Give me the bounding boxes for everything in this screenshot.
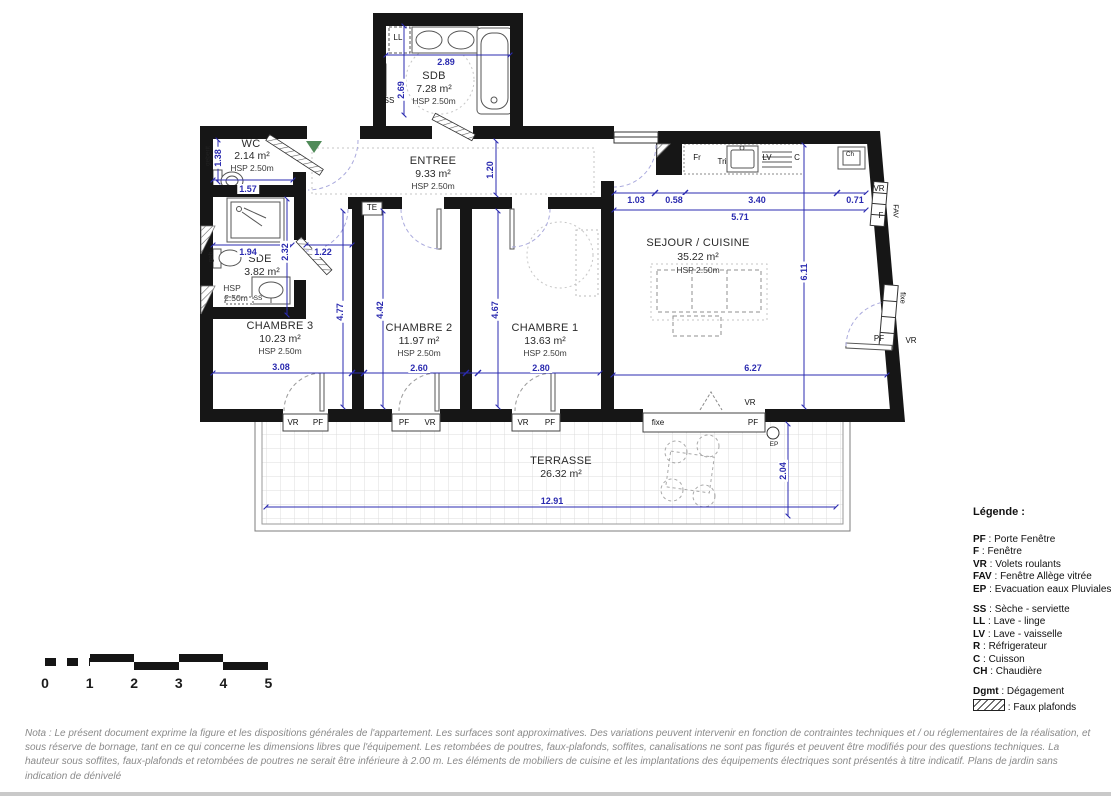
legend-item-ll: LL : Lave - linge <box>973 616 1111 628</box>
dim-terrace-height: 2.04 <box>778 460 788 482</box>
dim-ch3-height: 4.77 <box>335 301 345 323</box>
room-hsp-sde-1: HSP <box>223 283 240 293</box>
entrance-arrow <box>306 141 322 153</box>
floorplan-page: SDB 7.28 m² HSP 2.50m WC 2.14 m² HSP 2.5… <box>0 0 1111 800</box>
scale-segment-0-1 <box>45 658 90 666</box>
room-area-ch1: 13.63 m² <box>524 335 565 347</box>
room-label-entree: ENTREE <box>410 155 456 167</box>
legend-item-c: C : Cuisson <box>973 654 1111 666</box>
room-area-sdb: 7.28 m² <box>416 83 452 95</box>
room-label-sejour: SEJOUR / CUISINE <box>646 237 749 249</box>
window1-fav-label: FAV <box>892 204 901 218</box>
sorting-bin-label: Tri <box>717 157 726 166</box>
washing-machine-label: LL <box>394 33 403 42</box>
boiler-label: Ch <box>846 151 854 158</box>
scale-tick-1: 1 <box>86 675 94 691</box>
scale-tick-3: 3 <box>175 675 183 691</box>
dim-ch3-width: 3.08 <box>270 362 292 372</box>
dim-wc-height: 1.38 <box>213 147 223 169</box>
scale-tick-2: 2 <box>130 675 138 691</box>
legend-item-dgmt: Dgmt : Dégagement <box>973 686 1111 698</box>
ch1-window-vr: VR <box>517 418 528 427</box>
ch3-window-pf: PF <box>313 418 323 427</box>
room-label-sdb: SDB <box>422 70 446 82</box>
dim-sde-height: 2.32 <box>280 241 290 263</box>
room-hsp-wc: HSP 2.50m <box>230 163 273 173</box>
dim-wc-width: 1.57 <box>237 184 259 194</box>
sejour-window-pf: PF <box>748 418 758 427</box>
room-hsp-ch1: HSP 2.50m <box>523 348 566 358</box>
sofa <box>657 270 761 336</box>
room-hsp-sdb: HSP 2.50m <box>412 96 455 106</box>
fridge-label: Fr <box>693 153 701 162</box>
dim-ch1-height: 4.67 <box>490 299 500 321</box>
sejour-window-fixe: fixe <box>652 418 664 427</box>
room-label-ch3: CHAMBRE 3 <box>247 320 314 332</box>
room-area-sde: 3.82 m² <box>244 266 280 278</box>
legend-item-pf: PF : Porte Fenêtre <box>973 534 1111 546</box>
dim-sde-2: 1.22 <box>312 247 334 257</box>
dim-kitchen-3: 3.40 <box>746 195 768 205</box>
dim-sde-1: 1.94 <box>237 247 259 257</box>
legend-item-fav: FAV : Fenêtre Allège vitrée <box>973 571 1111 583</box>
window2-vr-label: VR <box>905 336 916 345</box>
electrical-panel-label: TE <box>367 203 377 212</box>
dim-sejour-height: 6.11 <box>799 261 809 282</box>
dim-hall: 1.20 <box>485 159 495 181</box>
windows <box>283 132 898 439</box>
room-label-wc: WC <box>242 138 261 150</box>
room-hsp-entree: HSP 2.50m <box>411 181 454 191</box>
disclaimer-note: Nota : Le présent document exprime la fi… <box>25 727 1091 784</box>
room-hsp-ch2: HSP 2.50m <box>397 348 440 358</box>
legend-item-r: R : Réfrigerateur <box>973 641 1111 653</box>
dim-ch2-height: 4.42 <box>375 299 385 321</box>
room-area-wc: 2.14 m² <box>234 150 270 162</box>
room-area-entree: 9.33 m² <box>415 168 451 180</box>
dishwasher-label: LV <box>762 153 771 162</box>
hob-label: C <box>794 153 800 162</box>
scale-segment-4-5 <box>223 662 268 670</box>
ch1-window-pf: PF <box>545 418 555 427</box>
sde-radiator-label: SS <box>254 295 263 302</box>
hatch-swatch <box>973 699 1005 711</box>
dim-kitchen-1: 1.03 <box>625 195 647 205</box>
room-hsp-sejour: HSP 2.50m <box>676 265 719 275</box>
room-hsp-ch3: HSP 2.50m <box>258 346 301 356</box>
room-label-ch1: CHAMBRE 1 <box>512 322 579 334</box>
scale-tick-5: 5 <box>264 675 272 691</box>
scale-bar: 0 1 2 3 4 5 <box>45 653 269 695</box>
dim-terrace-width: 12.91 <box>539 496 566 506</box>
window1-vr-label: VR <box>873 184 884 193</box>
room-hsp-sde-2: 2.50m <box>224 293 248 303</box>
legend-item-vr: VR : Volets roulants <box>973 559 1111 571</box>
dim-kitchen-total: 5.71 <box>729 212 751 222</box>
room-area-sejour: 35.22 m² <box>677 251 718 263</box>
dim-sejour-width: 6.27 <box>742 363 764 373</box>
legend-item-f: F : Fenêtre <box>973 546 1111 558</box>
room-label-ch2: CHAMBRE 2 <box>386 322 453 334</box>
ch2-window-vr: VR <box>424 418 435 427</box>
wardrobe <box>576 230 598 296</box>
dim-ch2-width: 2.60 <box>408 363 430 373</box>
ch2-window-pf: PF <box>399 418 409 427</box>
legend-item-ep: EP : Evacuation eaux Pluviales <box>973 584 1111 596</box>
walls <box>200 13 905 422</box>
dim-ch1-width: 2.80 <box>530 363 552 373</box>
room-area-terrasse: 26.32 m² <box>540 468 581 480</box>
dim-sdb-height: 2.69 <box>396 79 406 101</box>
legend-item-faux-plafonds: : Faux plafonds <box>973 699 1111 714</box>
scale-segment-3-4 <box>179 654 224 662</box>
scale-segment-1-2 <box>90 654 135 662</box>
legend: Légende : PF : Porte Fenêtre F : Fenêtre… <box>973 506 1111 714</box>
scale-tick-0: 0 <box>41 675 49 691</box>
geberit-label-sde: geb <box>208 252 215 263</box>
window2-fixe-label: fixe <box>899 292 908 304</box>
page-bottom-edge <box>0 792 1111 796</box>
ch3-window-vr: VR <box>287 418 298 427</box>
room-label-terrasse: TERRASSE <box>530 455 592 467</box>
room-area-ch2: 11.97 m² <box>399 335 440 347</box>
sejour-vr-label: VR <box>744 398 755 407</box>
dim-kitchen-2: 0.58 <box>663 195 685 205</box>
dim-kitchen-4: 0.71 <box>844 195 866 205</box>
legend-item-ss: SS : Sèche - serviette <box>973 604 1111 616</box>
dim-sdb-width: 2.89 <box>435 57 457 67</box>
rainwater-drain-label: EP <box>770 441 779 448</box>
room-area-ch3: 10.23 m² <box>259 333 300 345</box>
scale-segment-2-3 <box>134 662 179 670</box>
rainwater-drain <box>767 427 779 439</box>
scale-tick-4: 4 <box>219 675 227 691</box>
legend-title: Légende : <box>973 506 1111 518</box>
geberit-label: geberit <box>205 146 212 166</box>
window2-pf-label: PF <box>874 334 884 343</box>
window1-f-label: F <box>879 211 884 220</box>
towel-radiator-label: SS <box>384 96 395 105</box>
legend-item-ch: CH : Chaudière <box>973 666 1111 678</box>
legend-item-lv: LV : Lave - vaisselle <box>973 629 1111 641</box>
